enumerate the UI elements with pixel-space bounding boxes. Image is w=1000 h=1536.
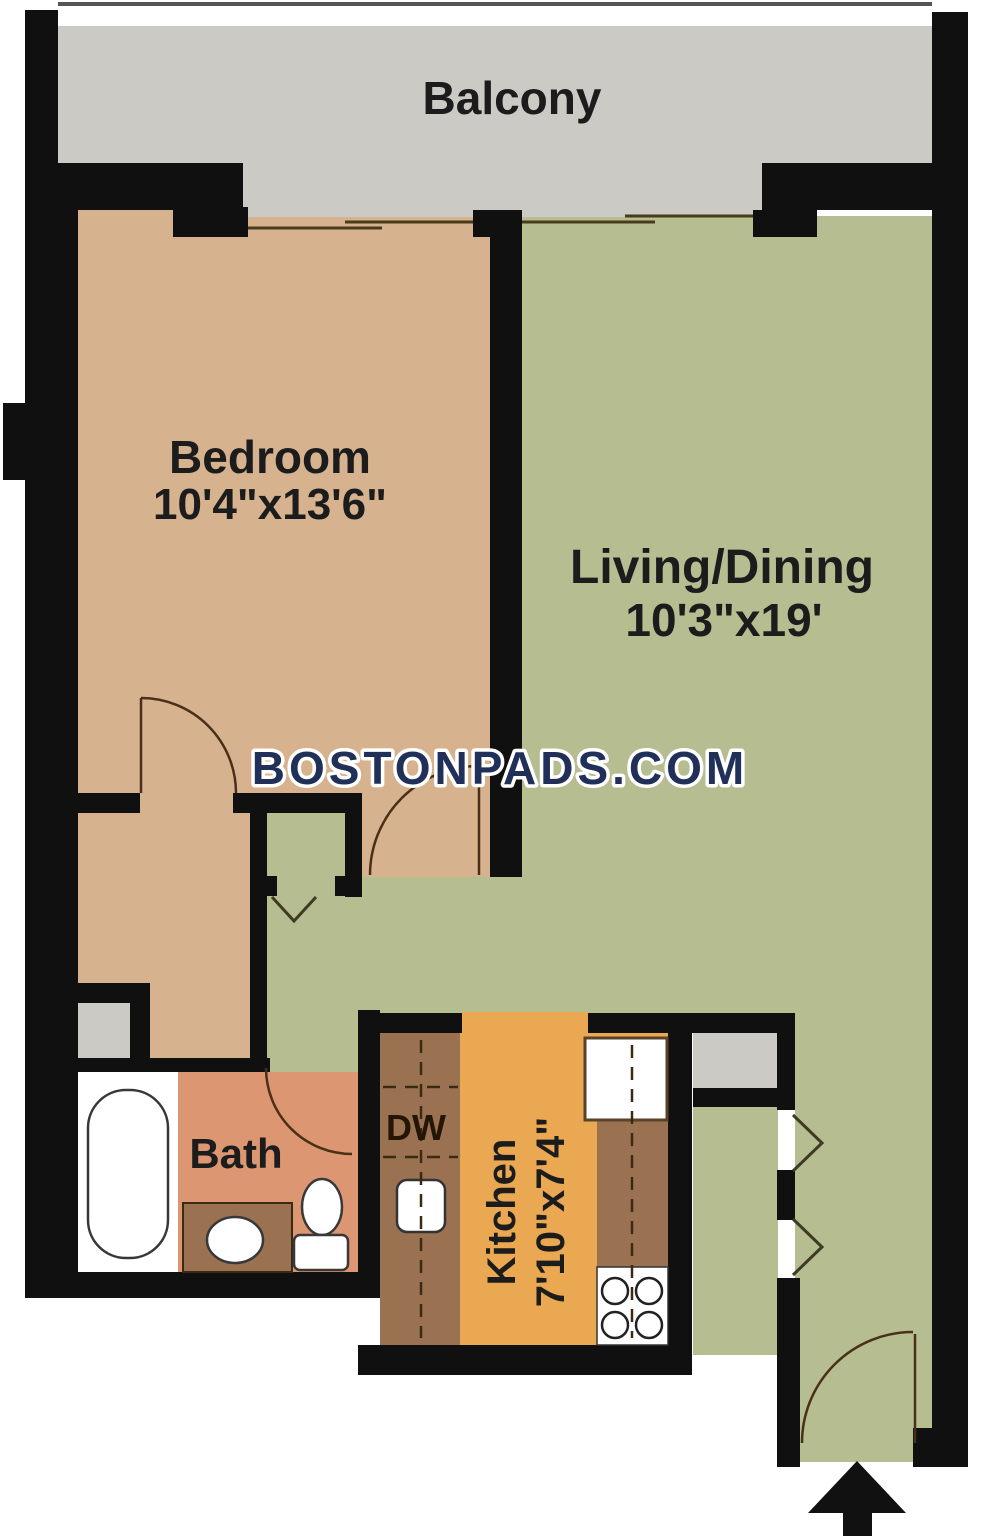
left-outer-wall <box>25 210 78 1298</box>
kitchen-north-wall-left <box>358 1013 462 1033</box>
bathtub <box>88 1090 168 1258</box>
balcony-label: Balcony <box>423 72 602 124</box>
bedroom-south-wall-left <box>77 793 140 813</box>
toilet-bowl <box>302 1179 342 1235</box>
bath-south-wall <box>25 1272 380 1298</box>
entry-floor <box>795 1013 932 1462</box>
floor-plan-canvas: Balcony Bedroom 10'4"x13'6" Living/Dinin… <box>0 0 1000 1536</box>
bath-label: Bath <box>189 1130 282 1177</box>
bath-north-wall <box>73 1058 270 1072</box>
refrigerator <box>585 1038 667 1120</box>
kitchen-south-wall <box>358 1345 692 1375</box>
hall-closet-right-wall <box>345 813 362 897</box>
balcony-wall-right-step <box>753 210 817 237</box>
balcony-wall-center-pier <box>473 210 522 237</box>
kitchen-entry-strip <box>462 1012 588 1033</box>
hall-bath-strip-floor <box>267 1013 358 1072</box>
entry-closet-wall-bottom <box>777 1278 800 1467</box>
entry-closet-shelf-wall <box>693 1088 778 1107</box>
entry-south-wall <box>913 1428 968 1467</box>
kitchen-label: Kitchen <box>480 1139 524 1286</box>
toilet-tank <box>294 1235 348 1270</box>
bedroom-label: Bedroom <box>169 431 371 483</box>
stove-burner <box>602 1312 628 1338</box>
right-outer-wall <box>932 12 968 1467</box>
balcony-wall-right <box>762 163 932 210</box>
kitchen-east-wall <box>668 1013 692 1360</box>
entry-arrow-icon <box>808 1461 906 1536</box>
left-wall-notch <box>3 403 25 480</box>
stove-burner <box>602 1278 628 1304</box>
hall-closet-stub-right <box>335 876 345 896</box>
dishwasher-label: DW <box>386 1107 446 1148</box>
balcony-railing <box>58 2 932 6</box>
bedroom-south-wall-right <box>233 793 362 813</box>
entry-closet-wall-top <box>777 1013 795 1110</box>
left-outer-wall-top <box>25 10 58 210</box>
floor-plan: Balcony Bedroom 10'4"x13'6" Living/Dinin… <box>0 0 1000 1536</box>
balcony-wall-left-step <box>173 207 248 237</box>
watermark: BOSTONPADS.COM <box>252 742 748 794</box>
stove-burner <box>636 1278 662 1304</box>
entry-closet-wall-mid <box>777 1170 795 1220</box>
balcony-floor-inner <box>243 163 762 217</box>
bedroom-vestibule-floor <box>362 793 490 877</box>
living-dining-label: Living/Dining <box>570 541 874 594</box>
bedroom-dimensions: 10'4"x13'6" <box>153 480 387 529</box>
bedroom-closet-side-wall <box>130 1003 150 1058</box>
bedroom-closet-top-wall <box>73 983 150 1003</box>
entry-closet-shelf <box>693 1033 778 1088</box>
stove-burner <box>636 1312 662 1338</box>
bedroom-closet-floor <box>78 1003 130 1058</box>
entry-closet-floor <box>693 1107 778 1355</box>
kitchen-dimensions: 7'10"x7'4" <box>529 1117 573 1307</box>
hall-closet-stub-left <box>267 876 277 896</box>
living-dining-dimensions: 10'3"x19' <box>625 594 822 646</box>
bedroom-door-threshold <box>140 793 233 813</box>
hall-closet-left-wall <box>250 813 267 1063</box>
balcony-wall-left <box>58 163 243 210</box>
vanity-sink <box>207 1217 263 1263</box>
bath-kitchen-wall <box>358 1010 380 1298</box>
